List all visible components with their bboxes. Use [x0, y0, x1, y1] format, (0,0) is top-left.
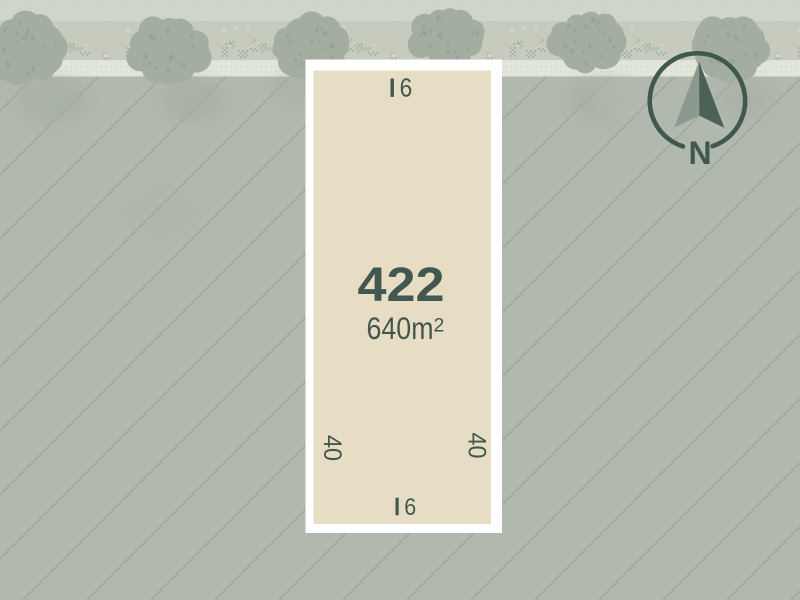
svg-text:6: 6: [400, 75, 413, 103]
svg-text:422: 422: [358, 259, 445, 312]
svg-text:N: N: [688, 135, 711, 171]
svg-text:2: 2: [434, 315, 445, 337]
svg-text:40: 40: [318, 435, 346, 461]
svg-text:40: 40: [463, 433, 491, 459]
svg-text:640m: 640m: [367, 310, 434, 346]
svg-text:6: 6: [404, 494, 416, 521]
